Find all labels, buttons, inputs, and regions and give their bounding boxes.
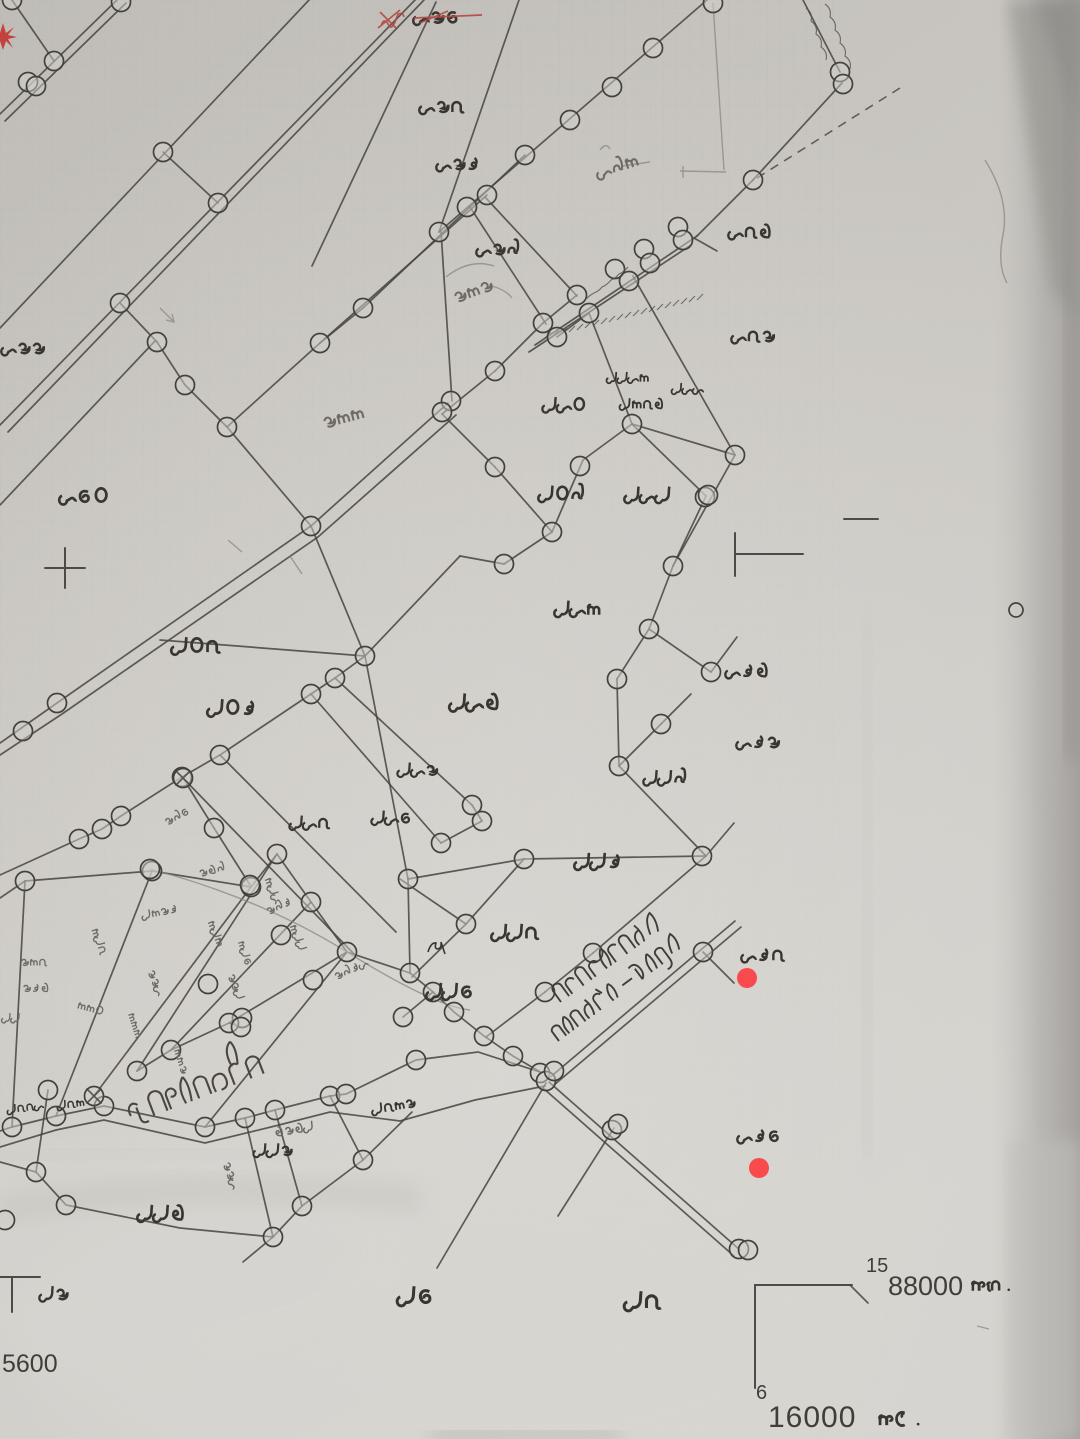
svg-text:5600: 5600 bbox=[2, 1350, 58, 1378]
svg-text:6: 6 bbox=[756, 1382, 767, 1404]
svg-text:15: 15 bbox=[866, 1255, 888, 1277]
svg-text:88000: 88000 bbox=[888, 1271, 963, 1301]
svg-text:16000: 16000 bbox=[768, 1401, 856, 1434]
